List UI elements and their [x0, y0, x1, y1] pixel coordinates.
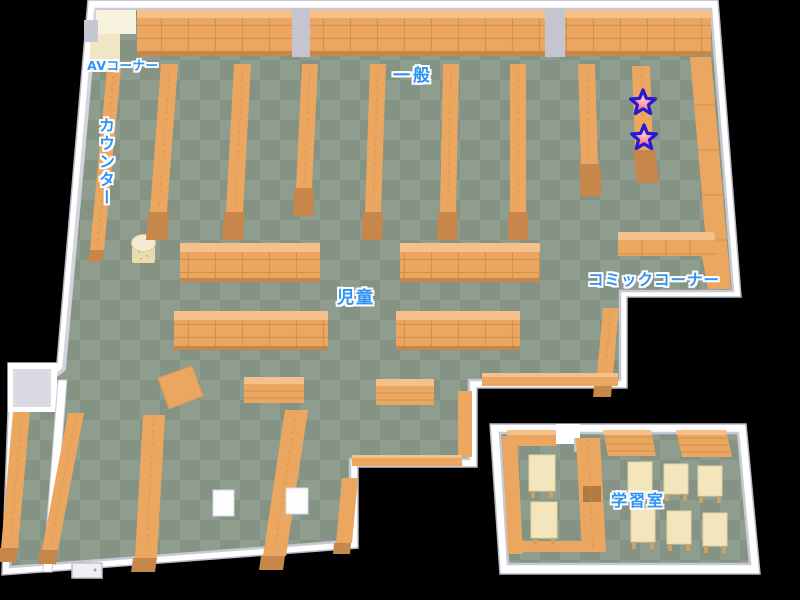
- area-label-comic-corner: コミックコーナー: [588, 268, 720, 290]
- top-wall-bookshelf: [310, 10, 545, 56]
- top-wall-bookshelf: [137, 10, 292, 56]
- entrance-alcove: [8, 363, 57, 412]
- comic-corner-bookshelf: [618, 232, 718, 256]
- wall-bookshelf-strip: [482, 373, 618, 386]
- bookshelf-block: [174, 311, 328, 350]
- floor-map-graphic: [0, 0, 800, 600]
- wall-bookshelf-strip: [458, 391, 472, 457]
- low-table: [376, 379, 434, 405]
- wall-bookshelf-strip: [352, 455, 462, 466]
- area-label-study-room: 学習室: [611, 487, 665, 511]
- entrance-door: [72, 563, 102, 578]
- bookshelf-block: [180, 243, 320, 282]
- bookshelf: [508, 64, 528, 240]
- area-label-av-corner: AVコーナー: [87, 55, 159, 74]
- library-floor-map: AVコーナー カウンター 一般 児童 コミックコーナー 学習室: [0, 0, 800, 600]
- wall-pillar: [292, 8, 310, 57]
- top-wall-bookshelf: [565, 10, 711, 56]
- bookshelf-block: [396, 311, 520, 350]
- wall-pillar: [545, 8, 565, 57]
- small-table: [213, 490, 234, 516]
- bookshelf-block: [400, 243, 540, 282]
- area-label-children: 児童: [337, 283, 375, 308]
- area-label-counter: カウンター: [93, 117, 117, 207]
- small-table: [286, 488, 308, 514]
- area-label-general: 一般: [393, 61, 433, 86]
- low-table: [244, 377, 304, 403]
